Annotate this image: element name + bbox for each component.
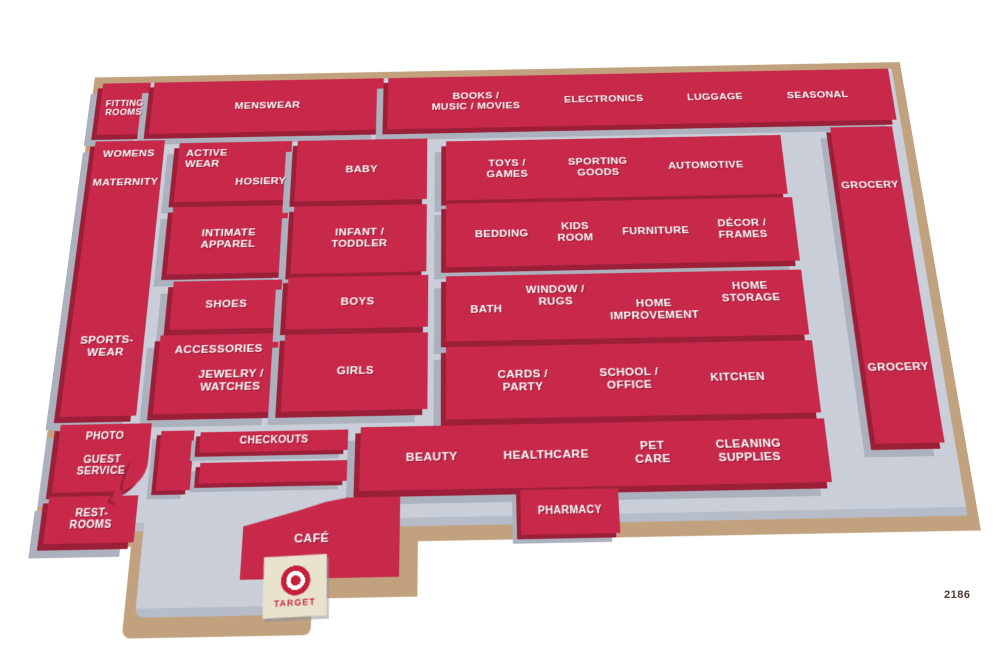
grocery-label-lower: GROCERY: [864, 361, 933, 375]
automotive-label: AUTOMOTIVE: [668, 159, 744, 171]
kids-room-label: KIDS ROOM: [557, 221, 594, 244]
luggage-label: LUGGAGE: [687, 92, 744, 103]
healthcare-label: HEALTHCARE: [503, 448, 589, 463]
dept-infant-toddler: INFANT / TODDLER: [290, 204, 426, 274]
cards-party-label: CARDS / PARTY: [497, 368, 548, 394]
floor-plan: FITTING ROOMS MENSWEAR BOOKS / MUSIC / M…: [17, 44, 999, 657]
pharmacy-label: PHARMACY: [538, 505, 603, 518]
kitchen-label: KITCHEN: [710, 371, 766, 385]
sportswear-label: SPORTS- WEAR: [67, 334, 145, 360]
dept-shoes: SHOES: [169, 280, 282, 330]
dept-baby: BABY: [294, 138, 427, 201]
bath-label: BATH: [470, 303, 502, 316]
dept-pharmacy: PHARMACY: [520, 488, 620, 535]
dept-top-right-wing: BOOKS / MUSIC / MOVIES ELECTRONICS LUGGA…: [387, 69, 896, 130]
dept-toys-sporting-automotive: TOYS / GAMES SPORTING GOODS AUTOMOTIVE: [446, 135, 788, 200]
intimate-apparel-label: INTIMATE APPAREL: [200, 228, 256, 252]
checkout-lane-block: [156, 430, 195, 490]
accessories-label: ACCESSORIES: [158, 343, 278, 358]
window-rugs-label: WINDOW / RUGS: [526, 284, 586, 309]
store-map-page: FITTING ROOMS MENSWEAR BOOKS / MUSIC / M…: [0, 0, 1000, 670]
maternity-label: MATERNITY: [89, 177, 161, 189]
home-improvement-label: HOME IMPROVEMENT: [609, 297, 700, 323]
dept-beauty-health-pet-cleaning: BEAUTY HEALTHCARE PET CARE CLEANING SUPP…: [359, 418, 832, 491]
seasonal-label: SEASONAL: [786, 90, 849, 101]
decor-frames-label: DÉCOR / FRAMES: [717, 218, 768, 242]
dept-girls: GIRLS: [281, 332, 428, 411]
target-brand-label: TARGET: [274, 596, 316, 608]
home-storage-label: HOME STORAGE: [720, 280, 781, 305]
target-entrance-sign: TARGET: [263, 554, 327, 619]
dept-restrooms: REST- ROOMS: [43, 495, 138, 544]
dept-cards-school-kitchen: CARDS / PARTY SCHOOL / OFFICE KITCHEN: [446, 340, 821, 419]
dept-accessories-jewelry: ACCESSORIES JEWELRY / WATCHES: [153, 333, 279, 414]
dept-activewear-hosiery: ACTIVE WEAR HOSIERY: [174, 141, 292, 202]
store-number: 2186: [944, 589, 970, 601]
electronics-label: ELECTRONICS: [564, 93, 644, 105]
toys-games-label: TOYS / GAMES: [486, 158, 528, 180]
dept-fitting-rooms: FITTING ROOMS: [97, 83, 151, 135]
dept-menswear: MENSWEAR: [149, 78, 384, 134]
bedding-label: BEDDING: [475, 228, 529, 240]
photo-label: PHOTO: [58, 430, 151, 443]
cafe-label: CAFÉ: [294, 532, 330, 547]
baby-label: BABY: [345, 164, 377, 175]
checkouts-strip-1: CHECKOUTS: [199, 430, 348, 453]
restrooms-label: REST- ROOMS: [69, 507, 114, 532]
fitting-rooms-label: FITTING ROOMS: [104, 99, 144, 118]
hosiery-label: HOSIERY: [235, 176, 287, 188]
dept-photo-guest-service: PHOTO GUEST SERVICE: [52, 423, 152, 493]
cleaning-supplies-label: CLEANING SUPPLIES: [715, 438, 783, 466]
sporting-goods-label: SPORTING GOODS: [568, 156, 629, 179]
shoes-label: SHOES: [205, 298, 247, 311]
boys-label: BOYS: [340, 296, 374, 309]
womens-label: WOMENS: [93, 148, 164, 160]
books-music-movies-label: BOOKS / MUSIC / MOVIES: [432, 91, 521, 113]
guest-service-label: GUEST SERVICE: [54, 454, 149, 479]
dept-bath-window-home: BATH WINDOW / RUGS HOME IMPROVEMENT HOME…: [446, 270, 809, 342]
target-bullseye-icon: [280, 564, 310, 596]
menswear-label: MENSWEAR: [234, 100, 300, 112]
checkouts-strip-2: [199, 460, 348, 484]
dept-boys: BOYS: [285, 275, 428, 329]
infant-toddler-label: INFANT / TODDLER: [331, 227, 388, 251]
checkouts-label: CHECKOUTS: [239, 435, 309, 448]
beauty-label: BEAUTY: [406, 450, 458, 464]
jewelry-watches-label: JEWELRY / WATCHES: [169, 367, 291, 394]
dept-intimate-apparel: INTIMATE APPAREL: [167, 205, 289, 274]
pet-care-label: PET CARE: [634, 440, 671, 467]
dept-bedding-kids-furniture-decor: BEDDING KIDS ROOM FURNITURE DÉCOR / FRAM…: [446, 197, 800, 267]
grocery-label-upper: GROCERY: [838, 180, 903, 192]
girls-label: GIRLS: [336, 365, 374, 378]
school-office-label: SCHOOL / OFFICE: [599, 366, 660, 392]
furniture-label: FURNITURE: [622, 225, 690, 238]
active-wear-label: ACTIVE WEAR: [185, 148, 228, 170]
